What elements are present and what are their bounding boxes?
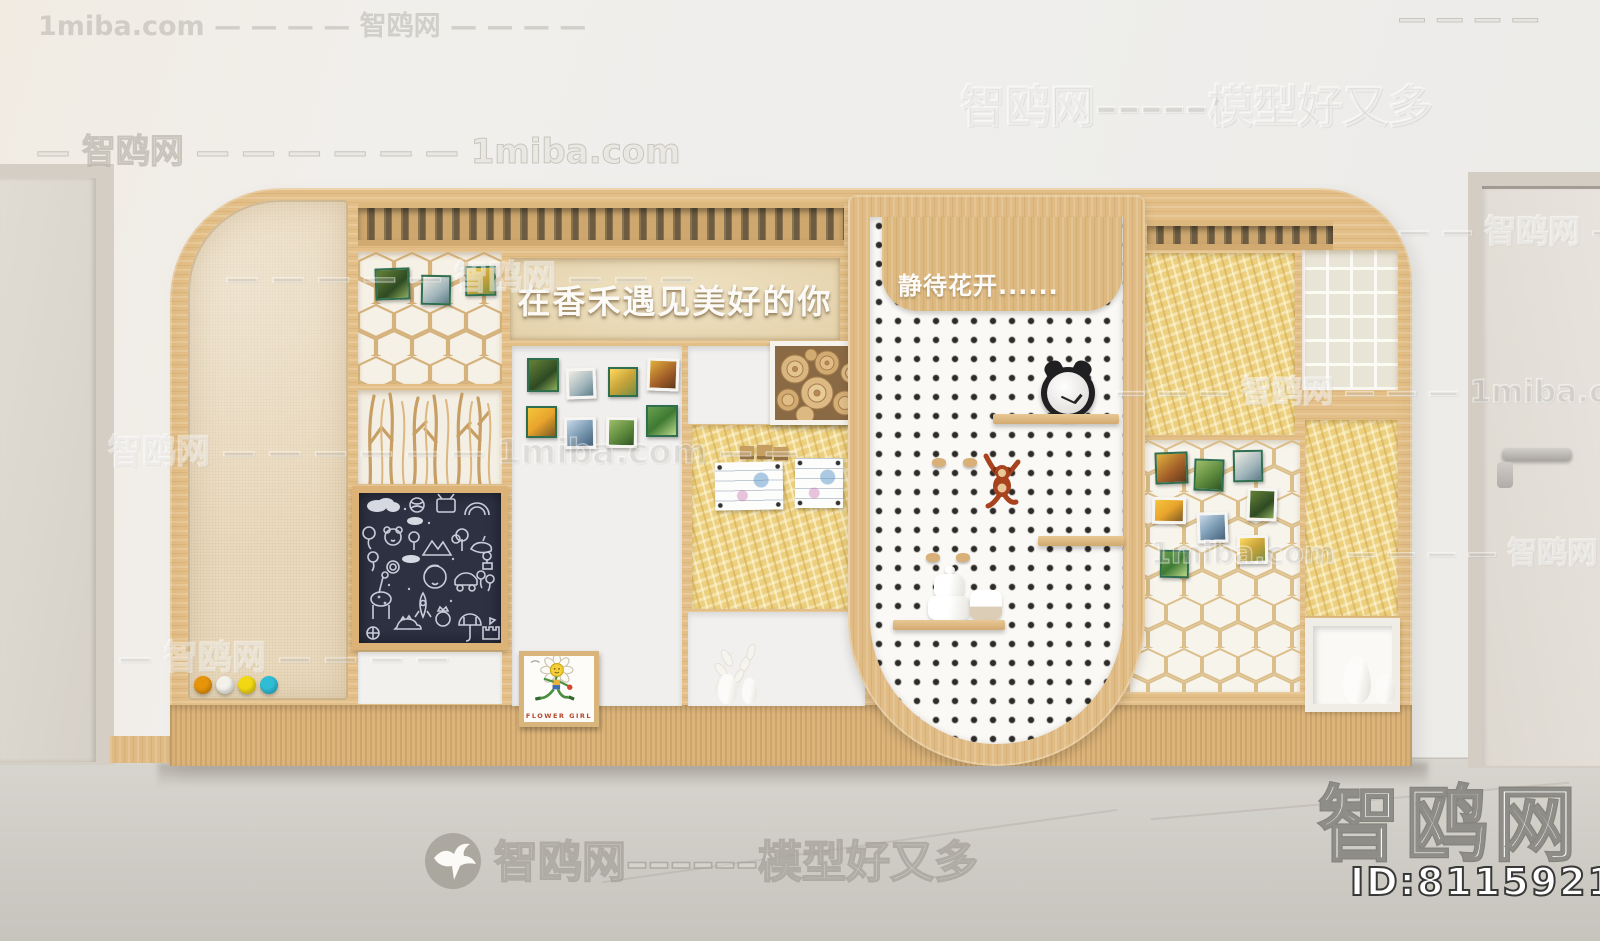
alarm-clock (1039, 361, 1097, 419)
display-box-shelf (1305, 618, 1400, 712)
arch-caption: 静待花开...... (898, 266, 1059, 301)
watermark: — 智鸥网 — — — — — — 1miba.com (36, 124, 681, 173)
white-sub-panel-lower (688, 612, 865, 706)
watermark: 1miba.com — — — — 智鸥网 — — — — (38, 4, 586, 43)
peg-shelf (1038, 536, 1124, 546)
peg-shelf (893, 620, 1005, 630)
wood-base-plinth (170, 705, 1412, 766)
wood-slat-strip-left (358, 202, 844, 246)
door-lock-plate (1497, 462, 1513, 488)
ceramic-jar-bottom (928, 596, 970, 620)
clock-face (1047, 372, 1089, 414)
scene: 在香禾遇见美好的你 (0, 0, 1600, 941)
peg-shelf (993, 414, 1119, 424)
photo (646, 357, 679, 391)
floor-shadow (158, 763, 1428, 787)
ceramic-jar (970, 590, 1002, 620)
wood-peg (926, 553, 940, 562)
ceramic-jar-top (934, 574, 964, 598)
right-door-seam (1482, 186, 1600, 189)
chalkboard (352, 486, 508, 650)
wood-slat-strip-right (1147, 220, 1333, 250)
wood-peg (932, 458, 946, 467)
watermark: 智鸥网 — — — — — — 1miba.com — — (108, 424, 798, 473)
photo (565, 367, 596, 399)
watermark: — — — 智鸥网 — — — 1miba.com (1115, 366, 1600, 411)
arch-header-panel: 静待花开...... (882, 217, 1122, 311)
left-door (0, 178, 96, 762)
photo (1233, 450, 1264, 483)
seagull-logo-icon (424, 832, 482, 890)
watermark: — — 智鸥网 — (1398, 206, 1600, 252)
wood-peg (963, 458, 977, 467)
pinned-paper (795, 458, 843, 508)
osb-strip-panel (1305, 420, 1398, 616)
small-white-vase (742, 678, 757, 704)
watermark: — — — — — 智鸥网 — — — (225, 250, 694, 299)
model-id-label: ID:811592104 (1350, 860, 1600, 904)
photo (527, 358, 559, 392)
white-vase (1375, 674, 1395, 704)
watermark: 智鸥网–––––模型好又多 (960, 70, 1433, 135)
white-vase (1343, 656, 1371, 704)
photo (1154, 451, 1188, 484)
ceramic-jar-lid (945, 566, 955, 574)
photo (1152, 497, 1186, 525)
photo (608, 367, 638, 397)
watermark: 智鸥网––––––模型好又多 (494, 826, 978, 890)
watermark: — 智鸥网 — — — — (118, 630, 449, 679)
clock-minute-hand (1061, 396, 1075, 404)
photo (1193, 458, 1224, 491)
monkey-toy (980, 452, 1024, 512)
flower-girl-picture: FLOWER GIRL (519, 651, 599, 727)
wood-peg (956, 553, 970, 562)
door-handle (1502, 448, 1572, 461)
photo (1246, 487, 1277, 521)
arch-pegboard-feature: 静待花开...... (848, 195, 1145, 766)
watermark: — — — — (1398, 2, 1539, 35)
flower-girl-caption: FLOWER GIRL (524, 712, 594, 720)
small-white-vase (718, 674, 737, 704)
watermark: 1miba.com — — — — 智鸥网 (1150, 528, 1597, 572)
base-step (110, 736, 172, 763)
